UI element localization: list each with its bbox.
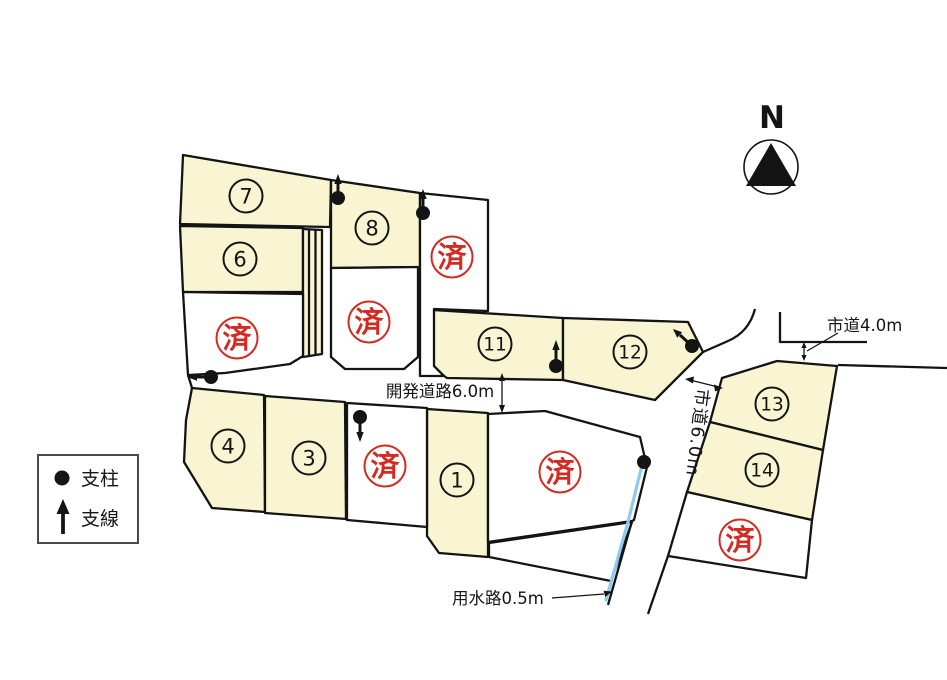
sold-stamp-bottom-row: 済 [365,446,406,487]
lot-7-parcel [180,155,331,227]
stairs-strip-parcel [303,229,322,357]
development-road-label: 開発道路6.0m [386,382,494,401]
svg-text:7: 7 [239,185,252,209]
svg-text:済: 済 [222,321,252,355]
svg-text:3: 3 [302,447,315,471]
city-road-4m-width-arrow [801,333,838,361]
lot-subdivision-map: 開発道路6.0m 市道6.0m 市道4.0m 用水路0.5m 7 6 8 11 … [0,0,947,680]
waterway-leader [552,591,612,598]
svg-text:4: 4 [221,435,234,459]
sold-stamp-center-large: 済 [540,452,581,493]
north-arrow: N [744,100,798,194]
north-label: N [759,100,785,136]
svg-text:12: 12 [618,343,642,364]
waterway-label: 用水路0.5m [452,589,544,608]
svg-text:1: 1 [450,469,463,493]
svg-text:済: 済 [725,523,755,557]
svg-text:済: 済 [370,449,400,483]
svg-text:済: 済 [437,240,467,274]
city-road-right-edge-bottom [648,556,668,614]
svg-text:14: 14 [750,461,774,482]
pillar-legend-icon [55,471,70,486]
city-road-left-edge-top [703,309,755,352]
legend-guywire-label: 支線 [81,508,119,530]
svg-text:済: 済 [354,305,384,339]
map-canvas: 開発道路6.0m 市道6.0m 市道4.0m 用水路0.5m 7 6 8 11 … [0,0,947,680]
pillar-center-road [637,455,651,469]
development-road-width-arrow [499,373,505,413]
sold-stamp-top-right: 済 [432,237,473,278]
sold-stamp-bottom-right: 済 [720,520,761,561]
svg-text:済: 済 [545,455,575,489]
svg-text:6: 6 [233,248,246,272]
sold-stamp-left: 済 [217,318,258,359]
sold-stamp-center-top: 済 [349,302,390,343]
legend-pillar-label: 支柱 [81,468,119,490]
legend: 支柱 支線 [38,455,138,543]
city-road-4m-label: 市道4.0m [827,316,902,335]
svg-text:13: 13 [760,395,784,416]
svg-text:8: 8 [365,217,378,241]
svg-text:11: 11 [483,335,507,356]
city-road-4m-south-edge [838,365,947,368]
